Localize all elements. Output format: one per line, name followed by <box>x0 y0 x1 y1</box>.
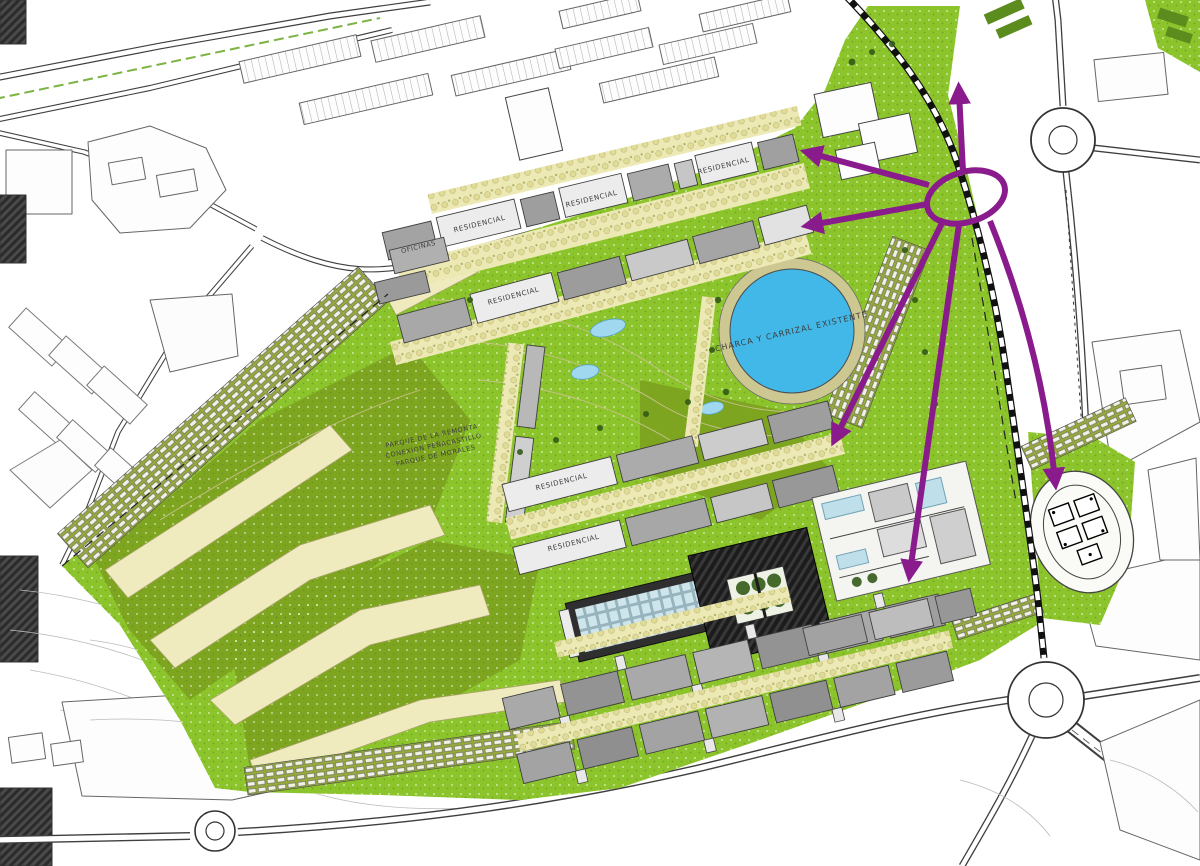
city-block <box>8 733 45 763</box>
edge-block <box>0 195 26 263</box>
city-block <box>51 740 84 766</box>
connection-arrow-north <box>959 92 963 172</box>
edge-block <box>0 556 38 662</box>
city-block <box>1120 365 1166 405</box>
masterplan-map: CHARCA Y CARRIZAL EXISTENTE <box>0 0 1200 866</box>
field-block-southeast <box>1100 700 1200 860</box>
edge-block <box>0 788 52 866</box>
edge-block <box>0 0 26 44</box>
city-block <box>1094 52 1168 101</box>
city-block-east <box>1148 458 1200 560</box>
map-canvas: CHARCA Y CARRIZAL EXISTENTE <box>0 0 1200 866</box>
